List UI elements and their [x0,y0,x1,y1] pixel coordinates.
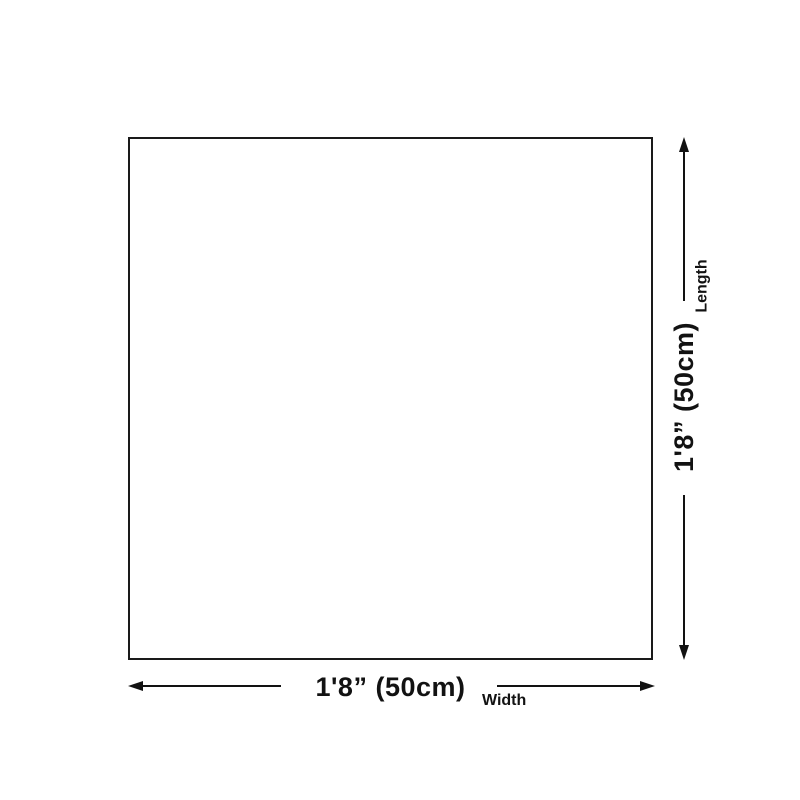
width-label: Width [482,692,526,709]
arrow-shaft [497,685,642,687]
width-arrow-right-icon [497,681,655,691]
arrow-shaft [683,150,685,301]
arrow-shaft [683,495,685,647]
length-arrow-down-icon [679,495,689,660]
length-label: Length [694,259,711,312]
dimension-diagram: 1'8” (50cm) Width Length 1'8” (50cm) [0,0,800,800]
arrowhead-right-icon [640,681,655,691]
length-arrow-up-icon [679,137,689,301]
arrowhead-up-icon [679,137,689,152]
arrowhead-down-icon [679,645,689,660]
product-outline [128,137,653,660]
length-value: 1'8” (50cm) [670,322,698,472]
